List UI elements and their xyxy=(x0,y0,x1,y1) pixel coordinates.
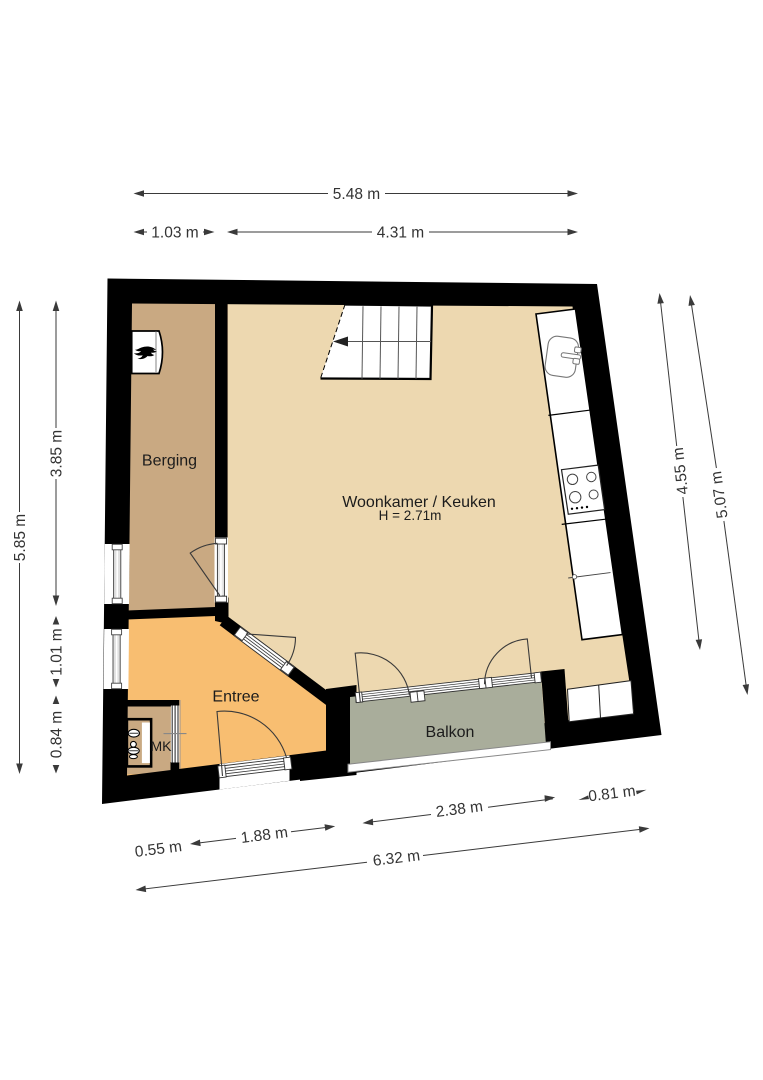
svg-text:1.03 m: 1.03 m xyxy=(151,225,198,242)
svg-text:Berging: Berging xyxy=(142,452,197,469)
svg-text:0.84 m: 0.84 m xyxy=(49,711,66,758)
svg-text:Balkon: Balkon xyxy=(426,724,475,741)
svg-text:4.31 m: 4.31 m xyxy=(377,225,424,242)
svg-text:1.01 m: 1.01 m xyxy=(49,628,66,675)
svg-text:5.48 m: 5.48 m xyxy=(333,186,380,203)
svg-text:MK: MK xyxy=(151,738,173,754)
svg-text:H = 2.71m: H = 2.71m xyxy=(379,508,442,523)
svg-text:3.85 m: 3.85 m xyxy=(49,430,66,477)
svg-text:Entree: Entree xyxy=(212,689,259,706)
svg-text:5.85 m: 5.85 m xyxy=(12,514,29,561)
